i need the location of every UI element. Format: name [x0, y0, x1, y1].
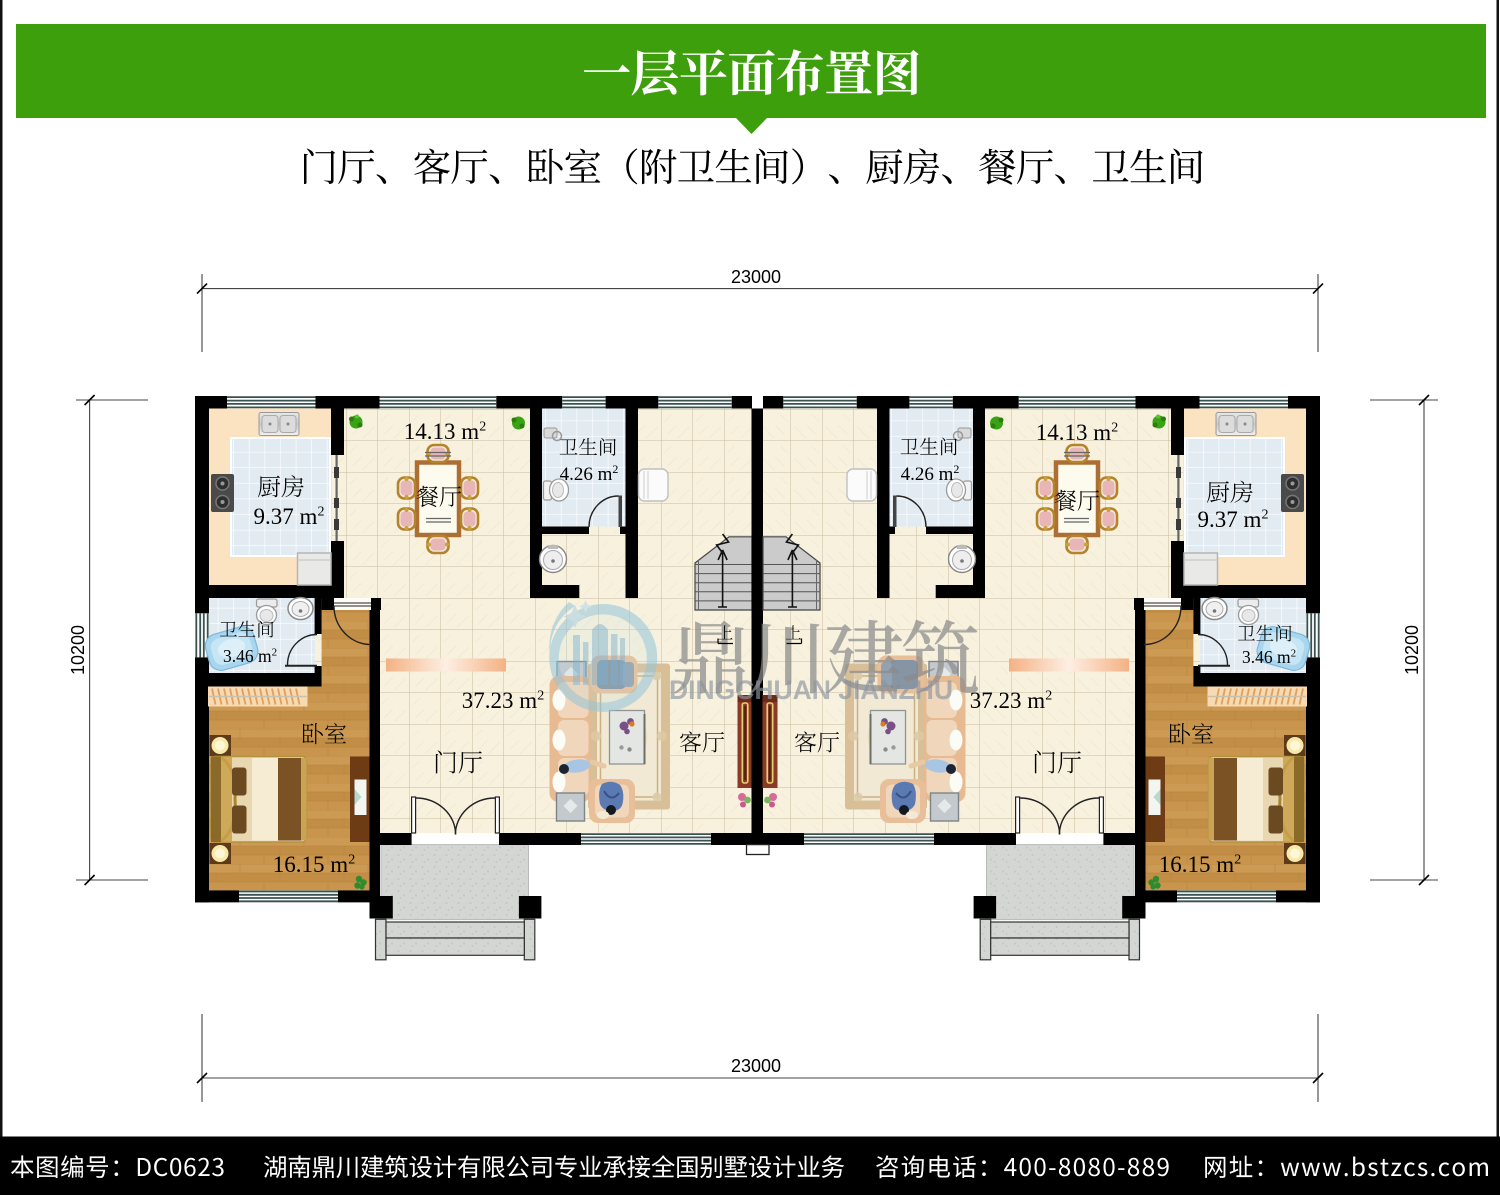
svg-text:14.13 m2: 14.13 m2	[1036, 420, 1118, 445]
svg-text:16.15 m2: 16.15 m2	[1159, 852, 1241, 877]
svg-text:23000: 23000	[731, 267, 781, 287]
svg-text:23000: 23000	[731, 1056, 781, 1076]
svg-text:3.46 m2: 3.46 m2	[223, 646, 277, 666]
svg-text:DINGCHUAN JIANZHU: DINGCHUAN JIANZHU	[669, 675, 953, 705]
svg-text:9.37 m2: 9.37 m2	[1198, 507, 1269, 532]
svg-text:14.13 m2: 14.13 m2	[404, 419, 486, 444]
svg-text:4.26 m2: 4.26 m2	[901, 462, 960, 485]
svg-text:10200: 10200	[68, 625, 88, 675]
svg-text:16.15 m2: 16.15 m2	[273, 852, 355, 877]
svg-text:3.46 m2: 3.46 m2	[1242, 647, 1296, 667]
svg-text:37.23 m2: 37.23 m2	[970, 688, 1052, 713]
svg-text:9.37 m2: 9.37 m2	[254, 504, 325, 529]
svg-text:37.23 m2: 37.23 m2	[462, 688, 544, 713]
svg-text:10200: 10200	[1402, 625, 1422, 675]
svg-text:4.26 m2: 4.26 m2	[560, 462, 619, 485]
